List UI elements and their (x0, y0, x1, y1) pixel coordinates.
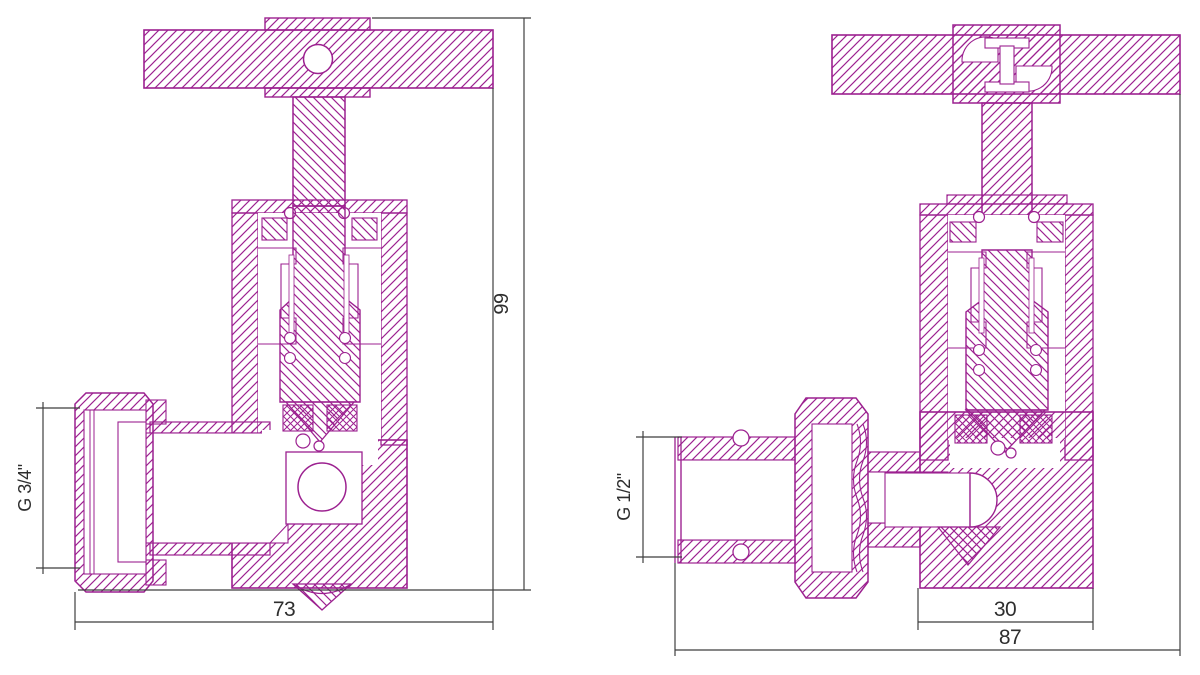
bonnet-cap-step (947, 195, 1067, 204)
fitting-bore (681, 460, 795, 540)
valve-stem (293, 97, 345, 206)
seat-pocket (885, 473, 970, 527)
gland-block-left (950, 222, 976, 242)
o-ring-bottom (733, 544, 749, 560)
nut-collar-bottom (146, 560, 166, 585)
inlet-pipe-wall-bottom (150, 543, 270, 555)
guide-strip-right (344, 255, 349, 335)
drain-cone (293, 584, 351, 610)
guide-strip-left (289, 255, 294, 335)
gland-block-right (1037, 222, 1063, 242)
seal-ring (314, 441, 324, 451)
handwheel-hub-top (265, 18, 370, 30)
dim-label-width-right: 87 (999, 626, 1021, 649)
valve-diagram-left (75, 18, 493, 610)
dim-label-height-left: 99 (491, 293, 513, 315)
tailpiece (118, 422, 146, 562)
spring-coil (285, 353, 296, 364)
valve-diagram-right (675, 25, 1180, 598)
inlet-pipe-wall-top (150, 422, 270, 433)
seal-ring (991, 441, 1005, 455)
bonnet-cap (920, 204, 1093, 215)
gland-block-left (262, 218, 287, 240)
spring-coil (974, 365, 985, 376)
packing-seal-left (283, 405, 313, 431)
spring-coil (974, 345, 985, 356)
packing-seal-right (327, 405, 357, 431)
guide-strip-left (979, 258, 984, 333)
spring-coil (340, 333, 351, 344)
spring-coil (285, 333, 296, 344)
ball-seal-right (1029, 212, 1040, 223)
technical-drawing-page: G 3/4" 99 73 (0, 0, 1200, 675)
seal-ring (296, 434, 310, 448)
dim-label-thread-right: G 1/2" (614, 473, 634, 521)
bonnet-wall-left (232, 213, 258, 445)
dim-label-body-width: 30 (994, 598, 1016, 621)
gland-block-right (352, 218, 377, 240)
handwheel-hub-bottom (265, 88, 370, 97)
nut-slot (812, 424, 852, 572)
arm-wall-top (868, 452, 920, 472)
seal-ring (1006, 448, 1016, 458)
hub-screw-shank (1000, 46, 1014, 84)
nut-collar-top (146, 400, 166, 424)
spring-coil (340, 353, 351, 364)
valve-drawings-canvas: G 3/4" 99 73 (0, 0, 1200, 675)
dim-label-thread-left: G 3/4" (15, 464, 35, 512)
spring-coil (1031, 365, 1042, 376)
packing-seal-left (955, 415, 987, 443)
o-ring-top (733, 430, 749, 446)
dimensions-right: G 1/2" 30 87 (614, 94, 1180, 656)
bonnet-wall-right (381, 213, 407, 445)
dim-label-width-left: 73 (273, 598, 295, 621)
ball-seal-left (974, 212, 985, 223)
spring-coil (1031, 345, 1042, 356)
handwheel-hole (304, 45, 333, 74)
packing-seal-right (1020, 415, 1052, 443)
guide-strip-right (1029, 258, 1034, 333)
seat-circle (298, 463, 346, 511)
